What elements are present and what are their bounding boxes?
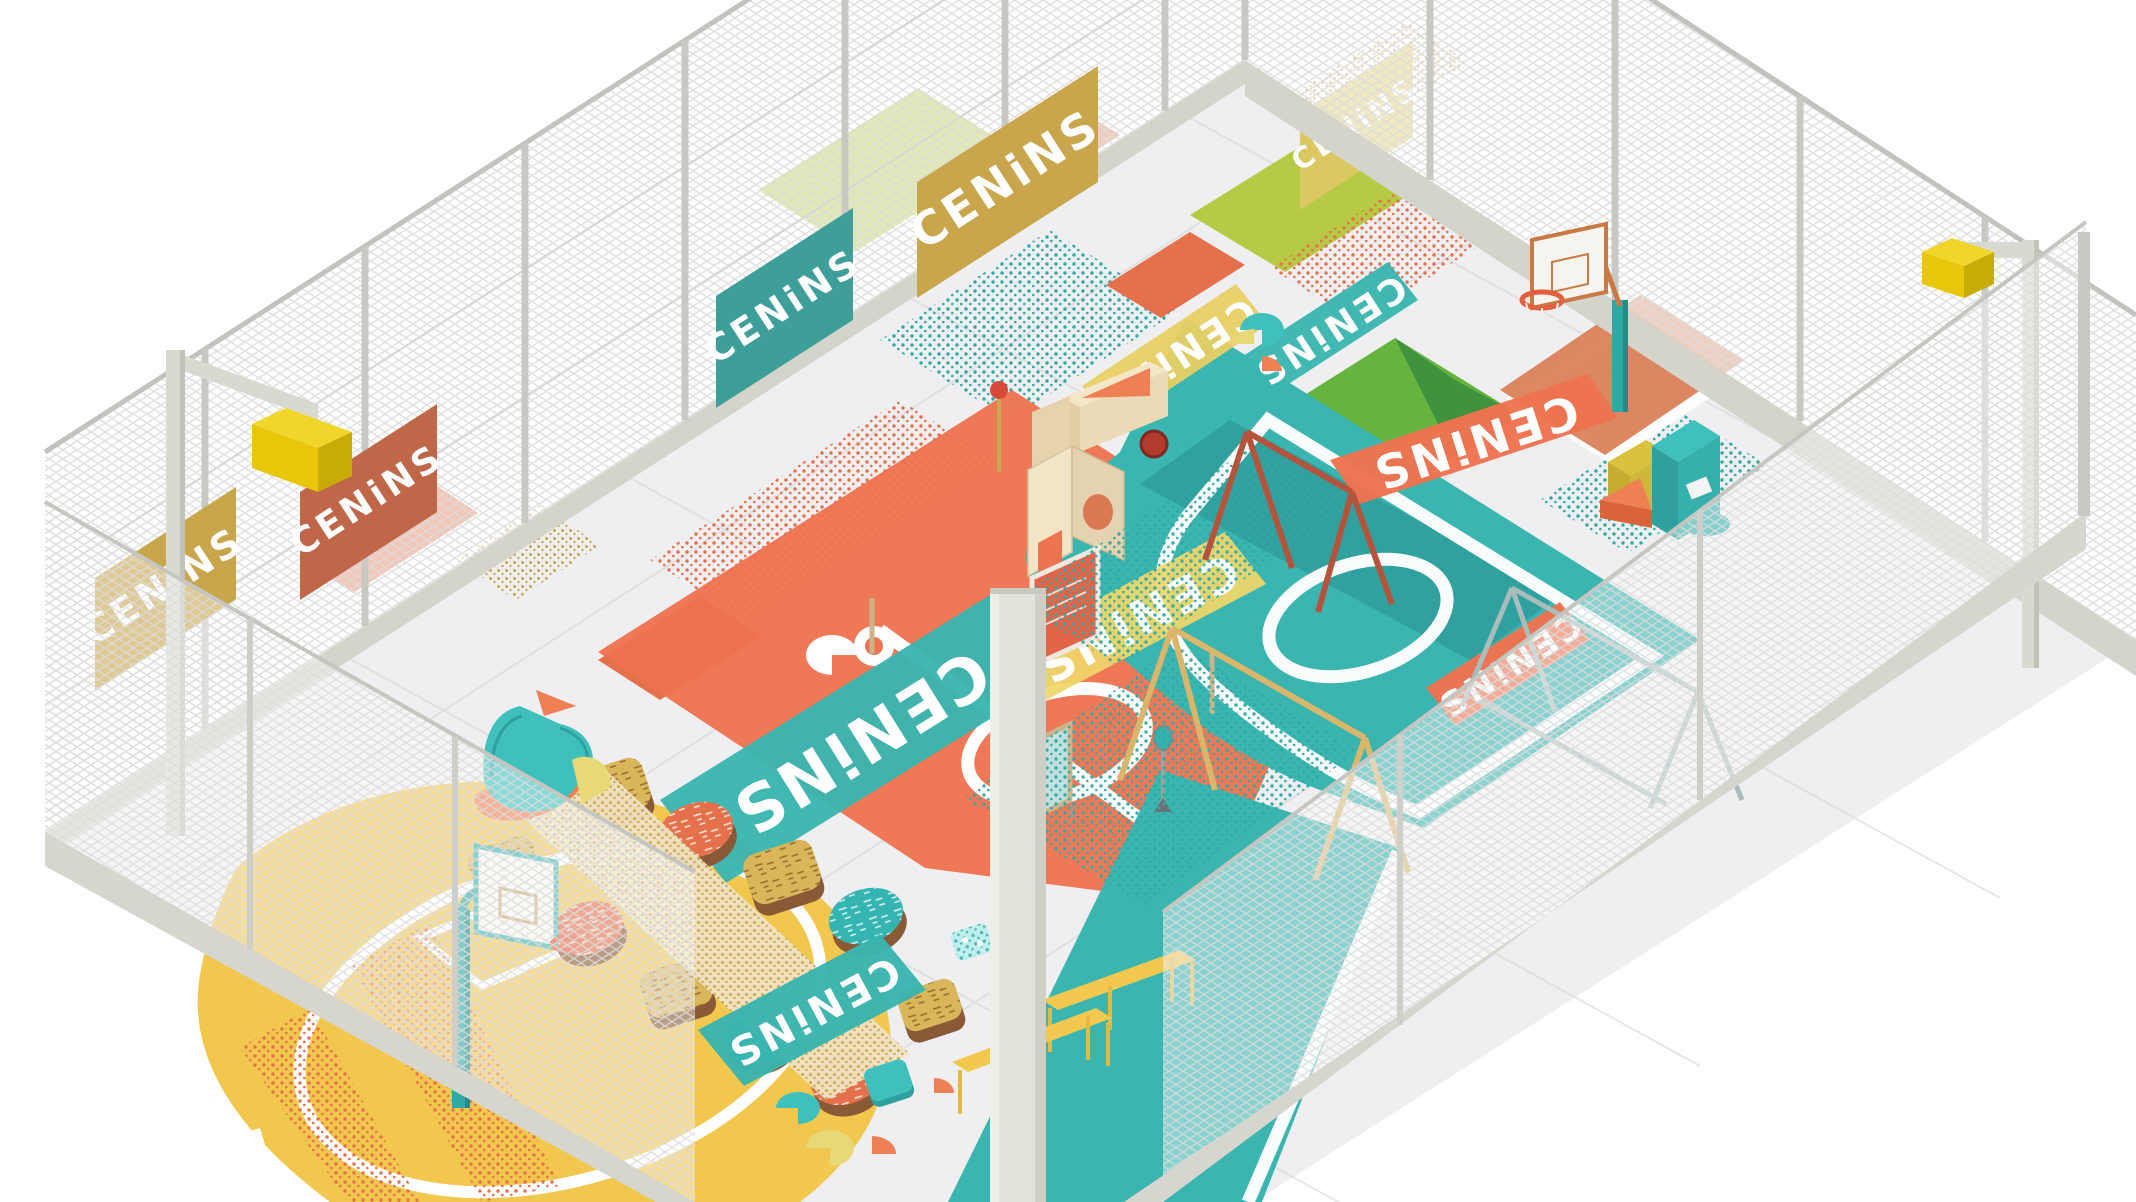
isometric-playground-scene: CENiNS CENiNS CENiNS CENiNS CENiNS CENiN… bbox=[0, 0, 2136, 1202]
cart-wheel bbox=[1141, 431, 1167, 457]
porthole bbox=[1083, 494, 1113, 530]
foreground-concrete-pole bbox=[990, 588, 1046, 1202]
render-canvas: CENiNS CENiNS CENiNS CENiNS CENiNS CENiN… bbox=[0, 0, 2136, 1202]
backboard bbox=[1532, 224, 1606, 308]
hoop-post-shade bbox=[1623, 300, 1628, 412]
corner-post bbox=[2078, 232, 2090, 516]
